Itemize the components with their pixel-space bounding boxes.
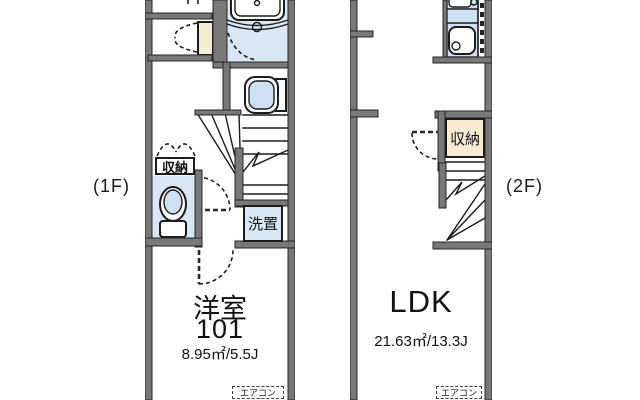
aircon-box-2f: エアコン [436,386,482,399]
closet-label-2f: 収納 [445,118,485,158]
upper-closet-box [198,22,213,55]
closet-door-swing-arc [412,132,438,159]
wall-stairs-bottom [433,242,492,249]
floor-2-plan: 収納 LDK 21.63㎡/13.3J エアコン [350,0,492,400]
laundry-label-text: 洗置 [248,213,278,234]
wall-top-stub [350,31,373,37]
aircon-label-text: エアコン [441,386,477,399]
toilet-icon [160,187,186,237]
aircon-label-text: エアコン [240,386,276,399]
room-number-1f: 101 [145,314,295,345]
closet-double-door-dashes [175,23,197,52]
closet-label-text: 収納 [450,128,480,149]
floor-1-plan: 収納 洗置 洋室 101 8.95㎡/5.5J エアコン [145,0,295,400]
room-name-2f: LDK [350,284,492,320]
closet-label-1f: 収納 [155,157,195,175]
wall-toilet-right [195,170,202,247]
wall-stairs-side [235,148,243,207]
staircase-icon [446,162,485,240]
wall-toilet-bottom [145,238,202,246]
wall-closet-bottom [148,55,212,61]
floor-1-label: (1F) [93,176,130,197]
closet-label-text: 収納 [162,157,188,176]
wall-stairs-top [195,110,241,115]
aircon-box-1f: エアコン [232,386,284,399]
duct-space-dashes [478,0,484,56]
wall-bath-left [213,0,227,68]
wall-stairs-left [439,163,446,208]
folding-door-dashes [157,144,195,156]
wall-kitchen-left [443,0,447,58]
laundry-space-label: 洗置 [243,205,283,242]
washbasin-icon [245,77,286,113]
wall-entry-divider [145,13,212,19]
room-area-1f: 8.95㎡/5.5J [145,343,295,364]
wall-kitchen-end [433,57,492,63]
room-door-swing-arc [199,250,233,284]
floor-plan-canvas: (1F) (2F) [0,0,640,400]
wall-basin-left [223,62,230,115]
wall-mid-left-stub [350,110,378,117]
wall-closet-left [438,111,445,171]
cutoff-door-dashes [188,0,198,7]
wall-room-top-right [235,241,295,248]
floor-2-label: (2F) [506,176,543,197]
room-area-2f: 21.63㎡/13.3J [350,330,492,351]
